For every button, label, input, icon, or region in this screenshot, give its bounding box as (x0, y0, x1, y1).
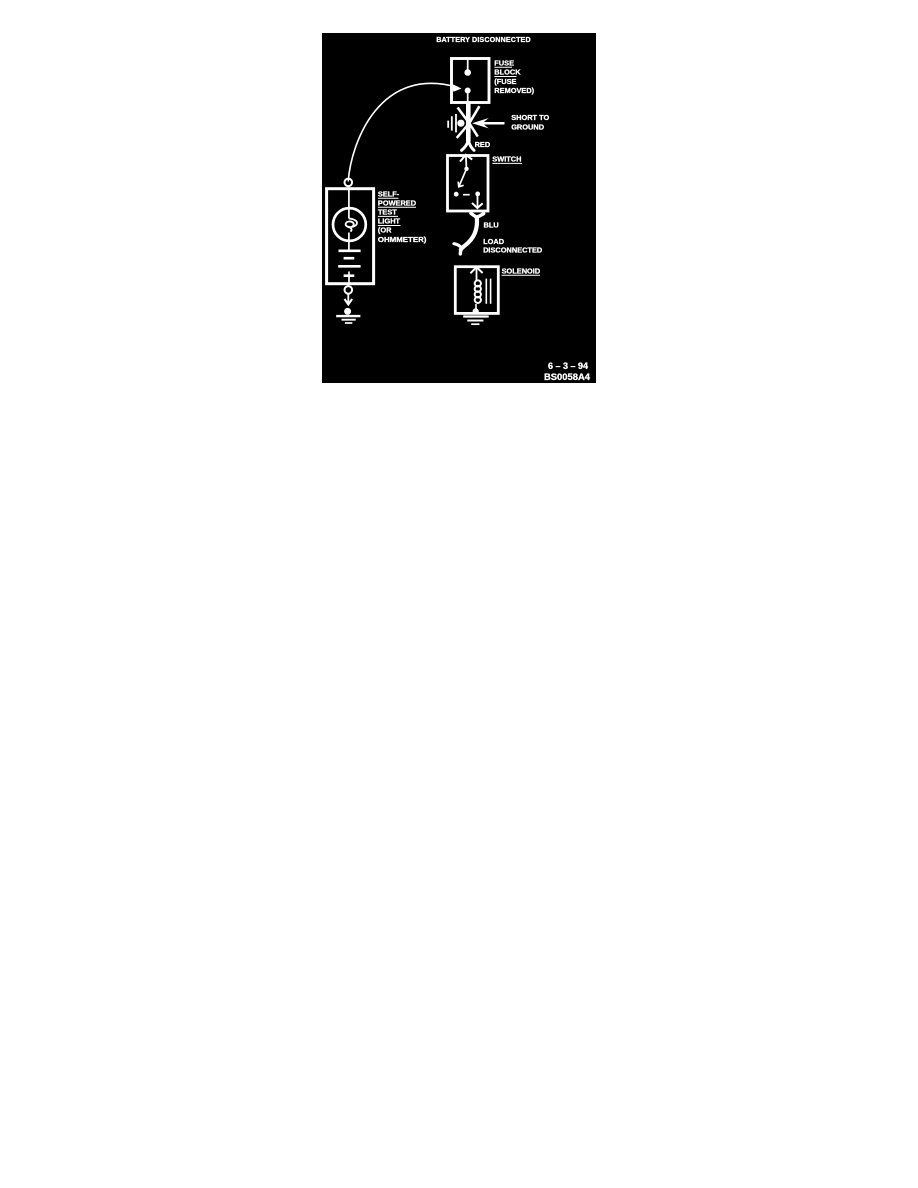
svg-text:OHMMETER): OHMMETER) (378, 235, 427, 244)
svg-text:SWITCH: SWITCH (492, 155, 521, 164)
svg-text:REMOVED): REMOVED) (494, 86, 534, 95)
svg-text:SHORT TO: SHORT TO (511, 113, 549, 122)
svg-text:DISCONNECTED: DISCONNECTED (483, 246, 543, 255)
svg-text:6 – 3 – 94: 6 – 3 – 94 (548, 361, 588, 371)
svg-text:BLOCK: BLOCK (494, 68, 521, 77)
svg-text:FUSE: FUSE (494, 58, 514, 67)
svg-text:SELF-: SELF- (378, 189, 400, 198)
svg-text:BLU: BLU (484, 221, 499, 230)
svg-text:LIGHT: LIGHT (378, 217, 401, 226)
svg-text:(FUSE: (FUSE (494, 77, 516, 86)
svg-text:POWERED: POWERED (378, 198, 417, 207)
svg-text:BATTERY DISCONNECTED: BATTERY DISCONNECTED (436, 35, 531, 44)
svg-text:GROUND: GROUND (511, 123, 545, 132)
svg-text:SOLENOID: SOLENOID (502, 266, 541, 275)
svg-text:BS0058A4: BS0058A4 (544, 372, 590, 382)
svg-text:TEST: TEST (378, 208, 397, 217)
svg-text:(OR: (OR (378, 226, 392, 235)
svg-text:RED: RED (475, 140, 491, 149)
